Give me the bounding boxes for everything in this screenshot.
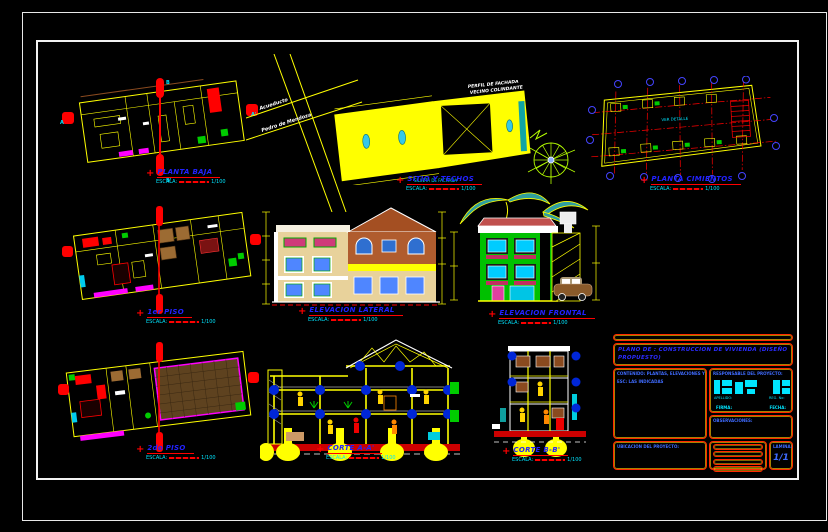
street-label: Pedro de Mendoza	[261, 112, 313, 134]
drawing-elevacion-frontal	[448, 182, 603, 316]
label-primer-piso: + 1er PISO ESCALA: 1/100	[136, 308, 216, 325]
people-and-furniture	[286, 382, 459, 441]
drawing-title: 1er PISO	[147, 308, 192, 318]
project-info-line: CONTENIDO: PLANTAS, ELEVACIONES Y CORTES	[614, 369, 706, 377]
notes-box: UBICACION DEL PROYECTO:	[613, 441, 707, 470]
revision-row	[713, 444, 763, 450]
revision-row	[713, 466, 763, 472]
crosshair-icon: +	[298, 308, 306, 316]
revision-row	[713, 459, 763, 465]
crosshair-icon: +	[488, 311, 496, 319]
project-info-box: CONTENIDO: PLANTAS, ELEVACIONES Y CORTES…	[613, 368, 707, 439]
sheet-number-box: LAMINA: 1/1	[769, 441, 793, 470]
observations-header: OBSERVACIONES:	[710, 416, 792, 424]
scale-bar	[349, 457, 379, 459]
svg-text:A: A	[60, 120, 64, 126]
scale-bar	[673, 188, 703, 190]
cad-sheet: B B' A A' Acueducto Pedro de Mendoza PER…	[0, 0, 828, 532]
revision-row	[713, 451, 763, 457]
label-planta-cimientos: + PLANTA CIMIENTOS ESCALA: 1/100	[640, 175, 741, 192]
drawing-primer-piso	[62, 206, 262, 318]
drawing-segundo-piso	[58, 342, 260, 454]
svg-text:APELLIDO:: APELLIDO:	[714, 396, 732, 400]
drawing-title: 2do PISO	[147, 444, 193, 454]
sheet-label: LAMINA:	[770, 442, 792, 450]
crosshair-icon: +	[316, 446, 324, 454]
project-info-line: ESC: LAS INDICADAS	[614, 377, 706, 385]
drawing-title: CORTE A-A'	[327, 444, 382, 454]
drawing-title: PLANTA BAJA	[157, 168, 220, 178]
drawing-title: CORTE B-B'	[513, 446, 568, 456]
label-sitio-techos: + SITIO Y TECHOS ESCALA: 1/100	[396, 175, 482, 192]
stamp-signature-glyph: APELLIDO: REG. No:	[713, 378, 791, 400]
plano-title-box: PLANO DE : CONSTRUCCION DE VIVIENDA (DIS…	[613, 343, 793, 366]
roof-terrace-hatch	[154, 358, 244, 420]
scale-bar	[535, 459, 565, 461]
drawing-title: ELEVACION LATERAL	[309, 306, 402, 316]
label-segundo-piso: + 2do PISO ESCALA: 1/100	[136, 444, 216, 461]
revision-rows-box	[709, 441, 767, 470]
stamp-footer-label: FECHA:	[766, 403, 789, 411]
scale-bar	[169, 457, 199, 459]
drawing-elevacion-lateral	[260, 198, 450, 316]
crosshair-icon: +	[396, 177, 404, 185]
north-compass-icon	[520, 126, 582, 188]
label-corte-bb: + CORTE B-B' ESCALA: 1/100	[502, 446, 582, 463]
plano-title: PLANO DE : CONSTRUCCION DE VIVIENDA (DIS…	[614, 344, 792, 365]
label-planta-baja: + PLANTA BAJA ESCALA: 1/100	[146, 168, 226, 185]
drawing-title: PLANTA CIMIENTOS	[651, 175, 740, 185]
scale-bar	[331, 319, 361, 321]
drawing-title: SITIO Y TECHOS	[407, 175, 482, 185]
label-elevacion-frontal: + ELEVACION FRONTAL ESCALA: 1/100	[488, 309, 595, 326]
crosshair-icon: +	[640, 177, 648, 185]
label-elevacion-lateral: + ELEVACION LATERAL ESCALA: 1/100	[298, 306, 403, 323]
svg-text:REG. No:: REG. No:	[769, 396, 785, 400]
svg-text:B: B	[166, 80, 170, 86]
crosshair-icon: +	[136, 446, 144, 454]
drawing-title: ELEVACION FRONTAL	[499, 309, 594, 319]
stamp-header: RESPONSABLE DEL PROYECTO:	[710, 369, 792, 377]
scale-bar	[521, 322, 551, 324]
scale-bar	[179, 181, 209, 183]
crosshair-icon: +	[146, 170, 154, 178]
svg-text:VER DETALLE: VER DETALLE	[661, 116, 688, 122]
notes-header: UBICACION DEL PROYECTO:	[614, 442, 706, 450]
scale-bar	[169, 321, 199, 323]
stamp-box: RESPONSABLE DEL PROYECTO: APELLIDO: REG.…	[709, 368, 793, 413]
crosshair-icon: +	[136, 310, 144, 318]
title-block: PLANO DE : CONSTRUCCION DE VIVIENDA (DIS…	[611, 334, 797, 472]
label-corte-aa: + CORTE A-A' ESCALA: 1/100	[316, 444, 396, 461]
observations-box: OBSERVACIONES:	[709, 415, 793, 439]
title-block-top-bar	[613, 334, 793, 341]
scale-bar	[429, 188, 459, 190]
crosshair-icon: +	[502, 448, 510, 456]
stamp-footer-label: FIRMA:	[713, 403, 735, 411]
drawing-planta-cimientos: VER DETALLE	[584, 76, 782, 184]
section-marker-arrows	[62, 78, 258, 176]
drawing-sitio-techos: PERFIL DE FACHADA VECINO COLINDANTE SILU…	[330, 80, 540, 185]
sheet-number: 1/1	[770, 453, 792, 463]
